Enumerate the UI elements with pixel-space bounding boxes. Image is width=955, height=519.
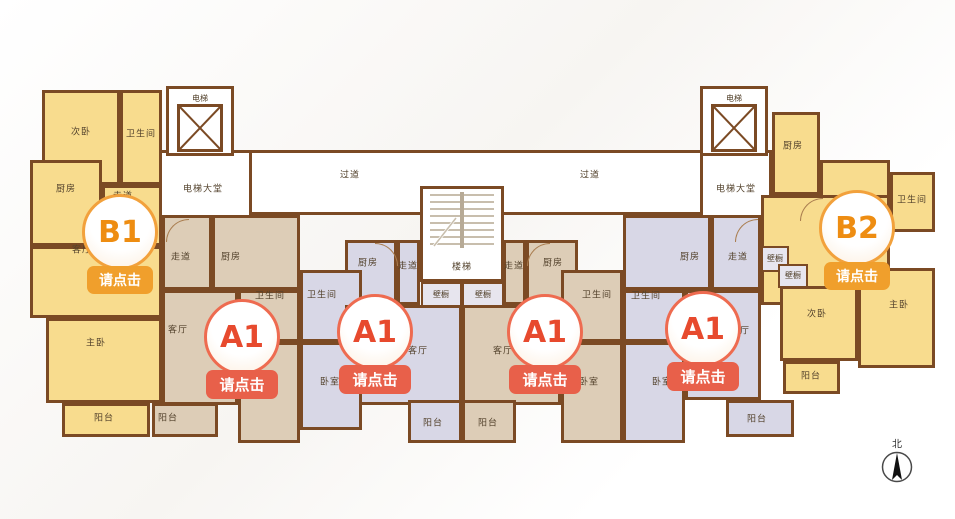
- click-button-a1-fourth[interactable]: 请点击: [667, 362, 738, 391]
- label-a1second-balcony: 阳台: [423, 420, 443, 429]
- unit-letter-b1[interactable]: B1: [82, 194, 158, 270]
- label-a1fourth-kitchen: 厨房: [680, 254, 700, 263]
- room-b2-kitchen: [772, 112, 820, 195]
- label-a1third-balcony: 阳台: [478, 420, 498, 429]
- label-a1third-hallway: 走道: [504, 263, 524, 272]
- label-a1first-balcony: 阳台: [158, 415, 178, 424]
- label-a1second-bathroom: 卫生间: [307, 292, 337, 301]
- unit-letter-a1-first[interactable]: A1: [204, 299, 280, 375]
- label-b2-closet1: 壁橱: [767, 255, 783, 263]
- label-elevator-right: 电梯: [726, 95, 742, 103]
- click-button-a1-second[interactable]: 请点击: [339, 365, 410, 394]
- label-a1fourth-bathroom: 卫生间: [631, 293, 661, 302]
- label-b1-master: 主卧: [86, 340, 106, 349]
- label-lobby-right: 电梯大堂: [716, 186, 756, 195]
- label-a1first-living: 客厅: [168, 327, 188, 336]
- label-a1third-kitchen: 厨房: [543, 260, 563, 269]
- elevator-icon-right: [711, 104, 757, 152]
- unit-letter-a1-second[interactable]: A1: [337, 294, 413, 370]
- elevator-icon-left: [177, 104, 223, 152]
- label-b1-kitchen: 厨房: [56, 186, 76, 195]
- label-b1-balcony: 阳台: [94, 415, 114, 424]
- label-lobby-left: 电梯大堂: [183, 186, 223, 195]
- room-b1-master: [46, 318, 162, 403]
- north-label: 北: [892, 436, 902, 451]
- floorplan-canvas: 过道 过道 电梯大堂 电梯大堂 电梯 电梯 楼梯 壁橱 壁橱 次卧 卫生间 厨房…: [0, 0, 955, 519]
- label-b1-bathroom: 卫生间: [126, 131, 156, 140]
- label-b2-balcony: 阳台: [801, 373, 821, 382]
- unit-badge-a1-first[interactable]: A1 请点击: [204, 299, 280, 399]
- click-button-a1-third[interactable]: 请点击: [509, 365, 580, 394]
- label-b2-master: 主卧: [889, 302, 909, 311]
- unit-letter-b2[interactable]: B2: [819, 190, 895, 266]
- label-a1second-kitchen: 厨房: [358, 260, 378, 269]
- label-b2-bedroom2: 次卧: [807, 311, 827, 320]
- label-passage-right: 过道: [580, 172, 600, 181]
- label-a1fourth-balcony: 阳台: [747, 416, 767, 425]
- label-b2-bathroom: 卫生间: [897, 197, 927, 206]
- unit-badge-a1-fourth[interactable]: A1 请点击: [665, 291, 741, 391]
- room-b2-bedroom2: [780, 286, 858, 361]
- click-button-b2[interactable]: 请点击: [824, 262, 890, 290]
- unit-badge-a1-second[interactable]: A1 请点击: [337, 294, 413, 394]
- unit-badge-b2[interactable]: B2 请点击: [819, 190, 895, 290]
- unit-badge-b1[interactable]: B1 请点击: [82, 194, 158, 294]
- compass-icon: [879, 450, 915, 486]
- label-a1fourth-hallway: 走道: [728, 254, 748, 263]
- unit-letter-a1-fourth[interactable]: A1: [665, 291, 741, 367]
- label-closet-core-left: 壁橱: [433, 291, 449, 299]
- unit-letter-a1-third[interactable]: A1: [507, 294, 583, 370]
- label-stairs: 楼梯: [452, 264, 472, 273]
- stairs-treads-icon: [426, 190, 498, 254]
- label-a1third-bathroom: 卫生间: [582, 292, 612, 301]
- label-closet-core-right: 壁橱: [475, 291, 491, 299]
- label-a1first-hallway: 走道: [171, 254, 191, 263]
- label-passage-left: 过道: [340, 172, 360, 181]
- label-a1second-hallway: 走道: [398, 263, 418, 272]
- label-elevator-left: 电梯: [192, 95, 208, 103]
- click-button-b1[interactable]: 请点击: [87, 266, 153, 294]
- unit-badge-a1-third[interactable]: A1 请点击: [507, 294, 583, 394]
- label-b2-kitchen: 厨房: [783, 143, 803, 152]
- click-button-a1-first[interactable]: 请点击: [206, 370, 277, 399]
- label-a1first-kitchen: 厨房: [221, 254, 241, 263]
- label-b2-closet2: 壁橱: [785, 272, 801, 280]
- label-b1-bedroom2: 次卧: [71, 129, 91, 138]
